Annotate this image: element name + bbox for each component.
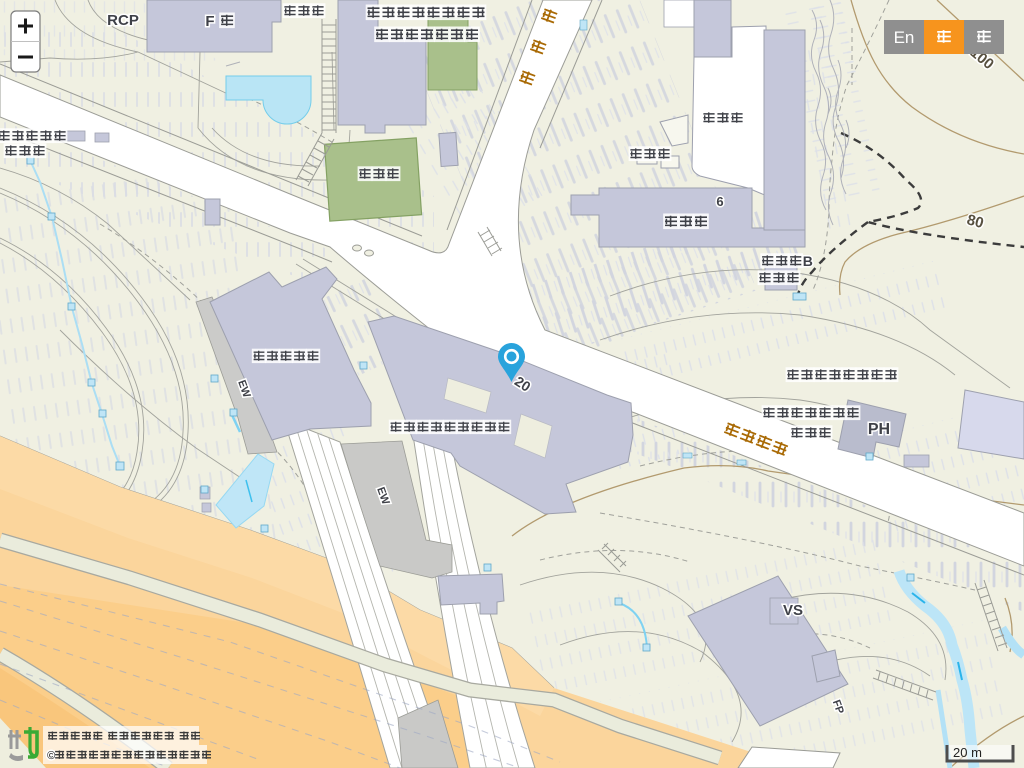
svg-text:RCP: RCP xyxy=(107,12,139,29)
svg-text:©: © xyxy=(47,750,56,762)
svg-text:VS: VS xyxy=(783,602,803,619)
svg-text:PH: PH xyxy=(868,421,890,438)
svg-text:6: 6 xyxy=(716,194,723,209)
svg-text:20 m: 20 m xyxy=(953,745,982,760)
svg-text:F: F xyxy=(205,13,214,30)
svg-text:En: En xyxy=(894,28,915,47)
svg-text:B: B xyxy=(803,253,813,269)
